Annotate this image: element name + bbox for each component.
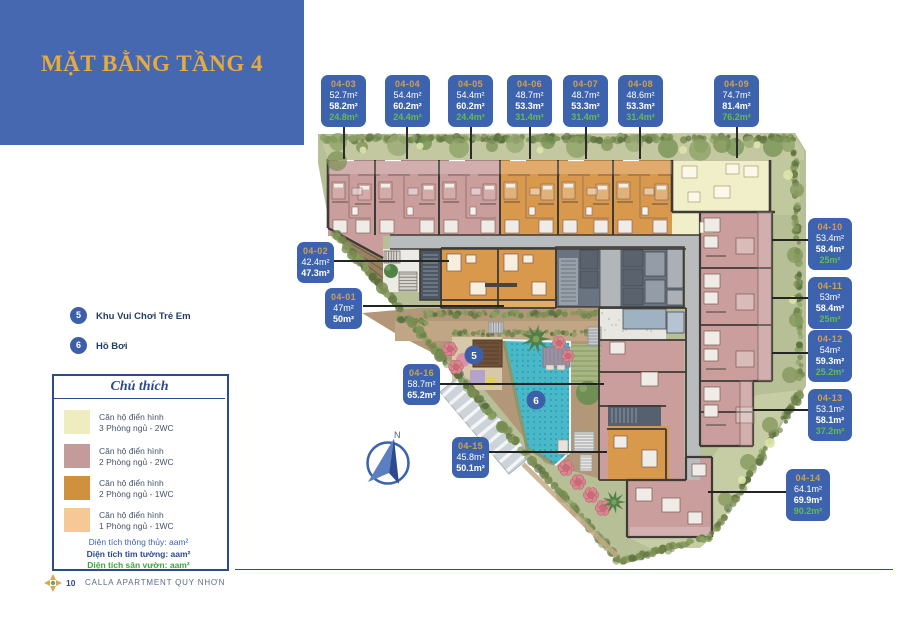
svg-text:5: 5 — [471, 351, 477, 362]
svg-text:6: 6 — [533, 396, 539, 407]
svg-text:N: N — [394, 430, 401, 440]
